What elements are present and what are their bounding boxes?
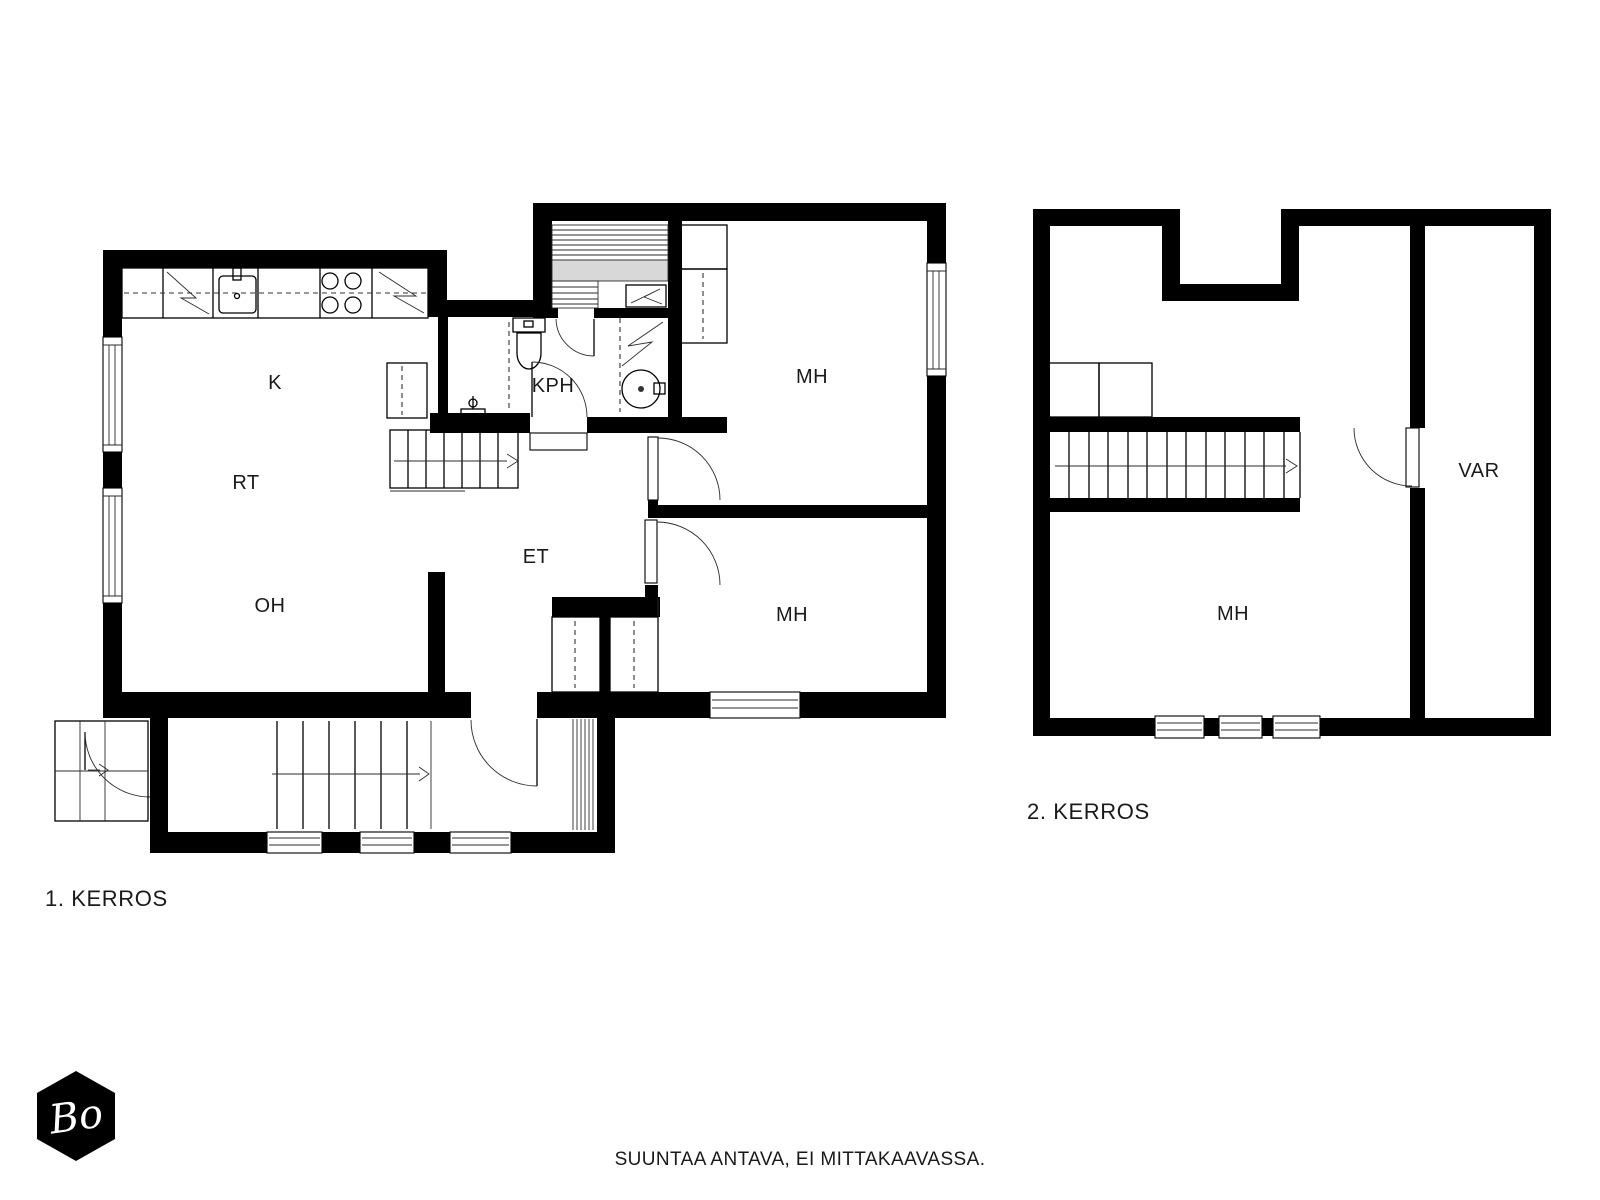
porch-hatch <box>573 719 593 830</box>
room-label-bathroom: KPH <box>532 375 575 397</box>
porch <box>55 719 593 830</box>
room-label-kitchen: K <box>268 372 282 394</box>
sauna-stove-icon <box>626 285 666 307</box>
floor-1-room-labels: K RT OH ET KPH MH MH <box>232 366 828 626</box>
brand-logo: Bo <box>37 1071 115 1161</box>
floor-1-closets <box>552 225 727 692</box>
floor-1-caption: 1. KERROS <box>45 886 168 911</box>
room-label-living: OH <box>255 595 286 617</box>
porch-entrance-door <box>85 732 150 797</box>
sauna-bench-upper <box>552 225 668 281</box>
shower-icon <box>622 322 663 366</box>
floor-2-caption: 2. KERROS <box>1027 799 1150 824</box>
door-storage <box>1354 428 1419 487</box>
bathroom-fixtures <box>461 318 665 417</box>
window-bedroom2f-south-2 <box>1219 716 1262 738</box>
sauna-fixtures <box>552 225 668 356</box>
floor-1-openings <box>471 433 587 719</box>
stairs-floor-2 <box>1055 432 1300 498</box>
brand-logo-text: Bo <box>45 1090 105 1143</box>
porch-stair-arrow <box>419 767 429 781</box>
floor-1-plan: K RT OH ET KPH MH MH 1. KERROS <box>45 203 946 911</box>
floor-1-walls <box>103 203 946 853</box>
window-porch-3 <box>450 832 511 853</box>
sauna-bench-lower <box>552 281 598 308</box>
window-porch-2 <box>360 832 414 853</box>
room-label-bedroom-upper: MH <box>796 366 828 388</box>
window-living-west <box>103 488 122 603</box>
kitchen-counter <box>122 268 428 318</box>
window-bedroom-east <box>927 263 946 376</box>
floor-2-windows <box>1155 716 1320 738</box>
sink-icon <box>219 268 256 313</box>
floor-2-closets <box>1049 363 1152 417</box>
stairs-floor-1 <box>390 430 518 491</box>
disclaimer-note: SUUNTAA ANTAVA, EI MITTAKAAVASSA. <box>615 1149 986 1170</box>
door-bedroom-lower <box>645 520 720 585</box>
stair-direction-arrow <box>394 454 518 468</box>
door-bedroom-upper <box>648 437 720 500</box>
closet-hall-right <box>610 617 658 692</box>
toilet-icon <box>513 318 545 369</box>
washing-machine-icon <box>622 370 665 408</box>
room-label-bedroom-lower: MH <box>776 604 808 626</box>
room-label-hall: ET <box>523 546 550 568</box>
room-label-bedroom-2f: MH <box>1217 603 1249 625</box>
room-label-dining: RT <box>232 472 259 494</box>
window-bedroom2f-south-3 <box>1273 716 1320 738</box>
stair-direction-arrow-2f <box>1055 459 1297 473</box>
floorplan-canvas: K RT OH ET KPH MH MH 1. KERROS <box>0 0 1600 1200</box>
front-door <box>471 719 537 786</box>
window-kitchen-west <box>103 337 122 452</box>
closet-hall-left <box>552 617 600 692</box>
closet-bedroom-upper <box>680 225 727 343</box>
sauna-door <box>556 319 594 356</box>
room-label-storage: VAR <box>1458 460 1499 482</box>
kitchen-fixtures <box>122 268 428 418</box>
kitchen-island <box>387 363 427 418</box>
porch-stairs <box>272 721 431 829</box>
floor-2-plan: MH VAR 2. KERROS <box>1027 209 1551 824</box>
floor-2-room-labels: MH VAR <box>1217 460 1500 625</box>
bathroom-door-threshold <box>530 433 587 450</box>
porch-steps-outside <box>55 721 148 821</box>
window-bedroom2f-south-1 <box>1155 716 1204 738</box>
window-porch-1 <box>267 832 322 853</box>
window-bedroom-south <box>710 692 800 718</box>
